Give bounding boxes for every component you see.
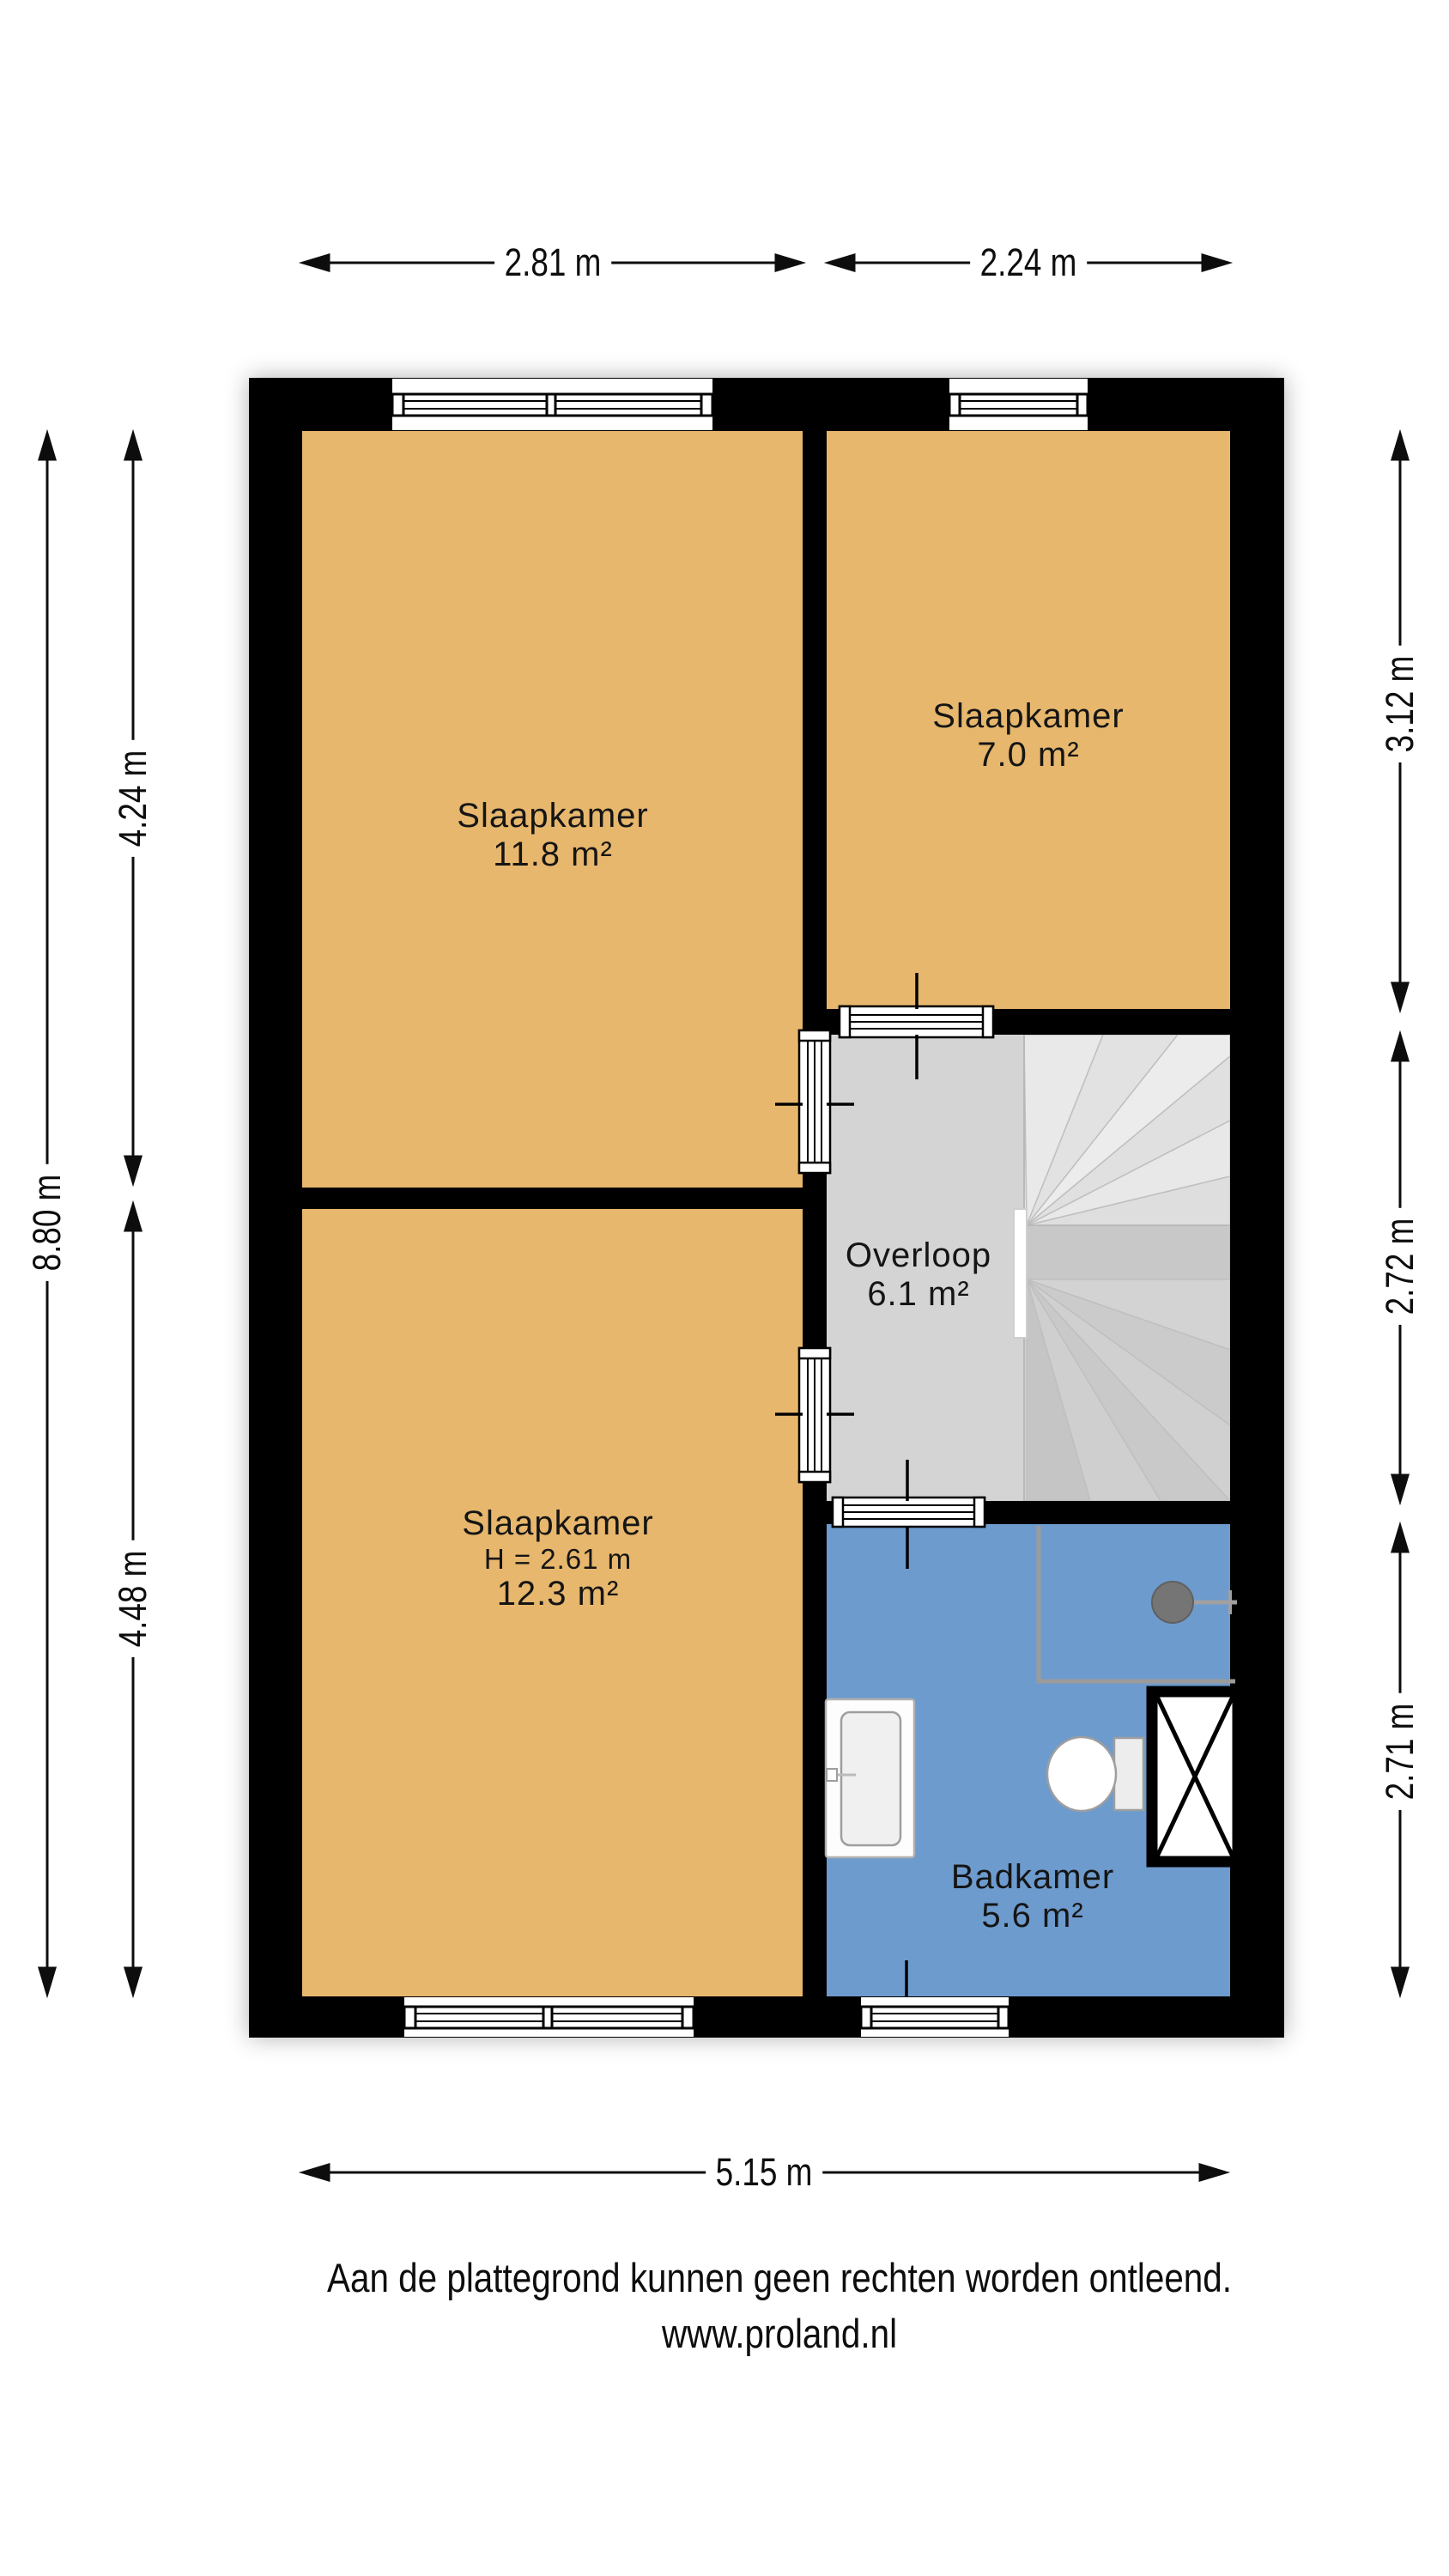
dimension-label-right-top: 3.12 m (1378, 646, 1422, 762)
footer-disclaimer: Aan de plattegrond kunnen geen rechten w… (327, 2254, 1232, 2301)
wall-interior-vertical (803, 431, 827, 1996)
dimension-label-top-left: 2.81 m (494, 240, 611, 285)
room-name: Slaapkamer (457, 797, 648, 835)
toilet-tank (1114, 1738, 1143, 1810)
staircase-mid-tread (1024, 1225, 1230, 1279)
room-area: 6.1 m² (846, 1275, 991, 1314)
interior-door-slaapkamer-groot (799, 1030, 830, 1173)
dimension-label-left-bottom: 4.48 m (111, 1540, 155, 1657)
bathtub (826, 1699, 914, 1857)
room-label-overloop: Overloop 6.1 m² (846, 1236, 991, 1314)
interior-door-badkamer (833, 1498, 985, 1527)
room-label-slaapkamer-groot: Slaapkamer 11.8 m² (457, 797, 648, 874)
wall-left (249, 378, 302, 2038)
vent-duct (1152, 1692, 1238, 1862)
dimension-label-right-middle: 2.72 m (1378, 1208, 1422, 1325)
floorplan-page: 2.81 m 2.24 m 8.80 m 4.24 m 4.48 m 3.12 … (0, 0, 1449, 2576)
room-label-slaapkamer-klein: Slaapkamer 7.0 m² (932, 697, 1124, 775)
window-top-right (949, 379, 1088, 430)
room-label-slaapkamer-achter: Slaapkamer H = 2.61 m 12.3 m² (462, 1504, 653, 1614)
room-name: Overloop (846, 1236, 991, 1275)
dimension-label-right-bottom: 2.71 m (1378, 1693, 1422, 1810)
dimension-label-bottom: 5.15 m (706, 2150, 822, 2195)
window-top-left (392, 379, 712, 430)
room-name: Slaapkamer (462, 1504, 653, 1543)
interior-door-slaapkamer-achter (799, 1348, 830, 1482)
room-area: 11.8 m² (457, 835, 648, 874)
bathtub-faucet (827, 1769, 837, 1781)
dimension-label-left-top: 4.24 m (111, 740, 155, 857)
dimension-label-top-right: 2.24 m (970, 240, 1087, 285)
dimension-label-left-outer: 8.80 m (25, 1164, 70, 1281)
room-label-badkamer: Badkamer 5.6 m² (951, 1858, 1114, 1935)
wall-between-bedrooms (302, 1188, 803, 1209)
toilet (1047, 1737, 1143, 1811)
room-height-note: H = 2.61 m (462, 1543, 653, 1575)
toilet-bowl (1047, 1737, 1116, 1811)
window-bottom-left (404, 1997, 694, 2037)
room-area: 12.3 m² (462, 1576, 653, 1614)
window-bottom-right (861, 1997, 1009, 2037)
staircase-newel-post (1014, 1209, 1027, 1338)
footer-website: www.proland.nl (662, 2310, 897, 2357)
staircase (1014, 1035, 1230, 1503)
interior-panel-slaapkamer-klein (840, 1006, 993, 1037)
room-area: 7.0 m² (932, 736, 1124, 775)
room-area: 5.6 m² (951, 1897, 1114, 1935)
room-name: Badkamer (951, 1858, 1114, 1897)
shower-head-icon (1152, 1582, 1193, 1623)
room-name: Slaapkamer (932, 697, 1124, 736)
